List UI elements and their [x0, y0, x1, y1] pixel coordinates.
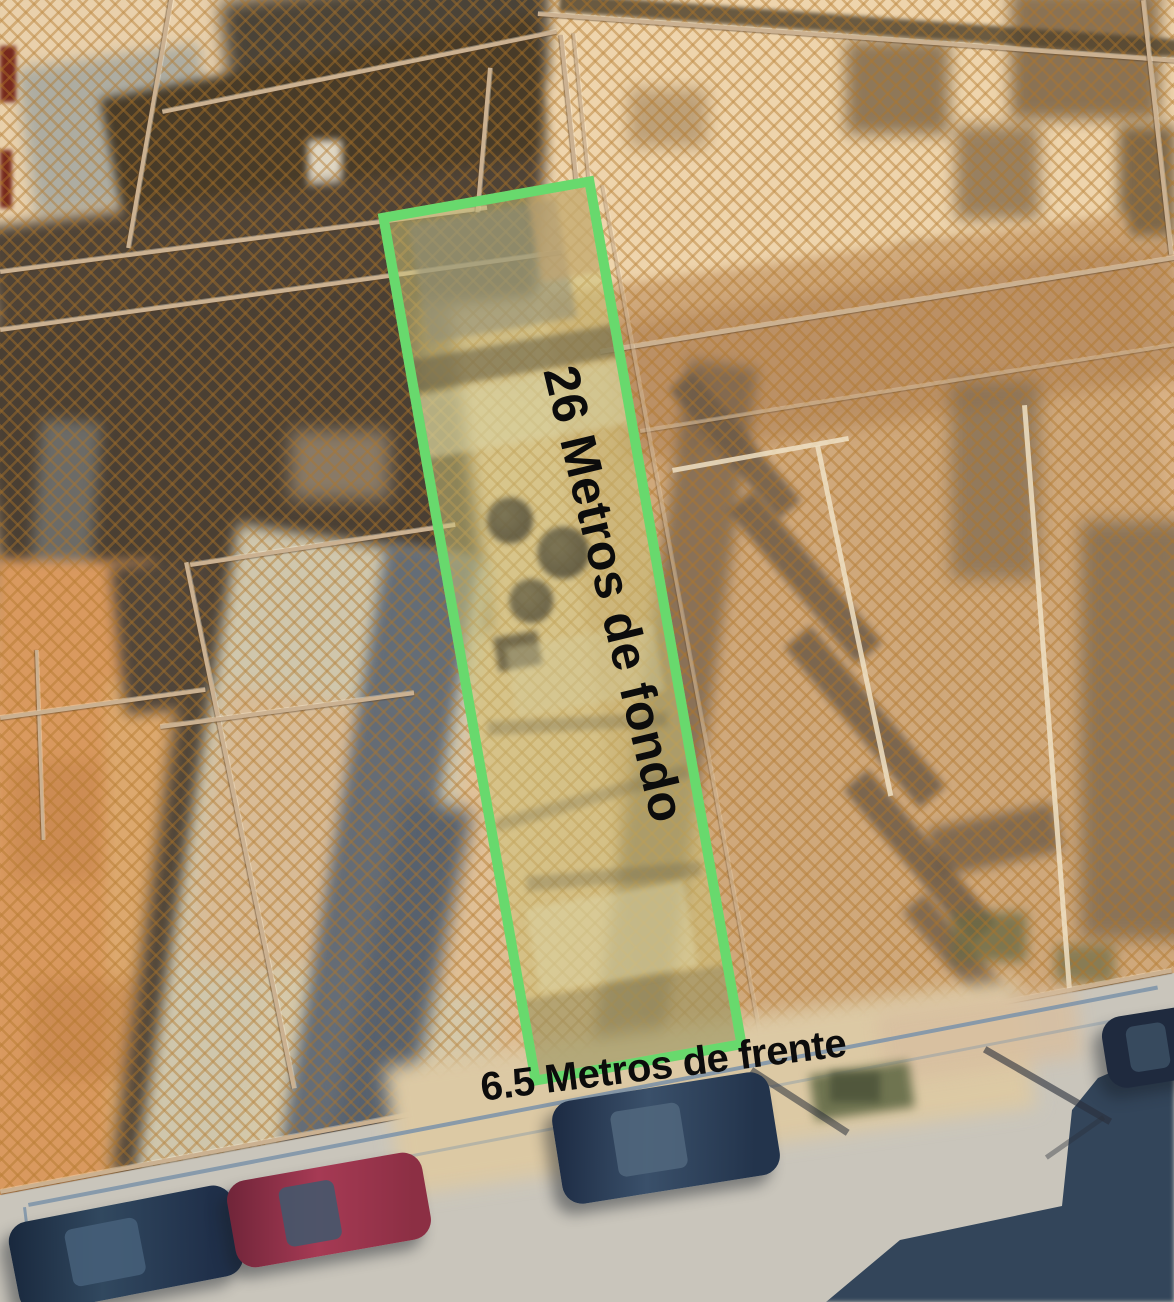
plot-tank-circle: [483, 494, 536, 547]
car-windshield: [63, 1216, 147, 1287]
parcel-boundary-line: [0, 688, 206, 720]
car-windshield: [278, 1179, 344, 1248]
car-windshield: [1125, 1021, 1172, 1073]
parcel-boundary-line: [190, 523, 456, 567]
parcel-boundary-line: [1141, 0, 1173, 255]
parcel-boundary-line: [600, 256, 1174, 354]
parcel-boundary-line: [640, 344, 1174, 433]
parcel-boundary-line: [160, 691, 414, 729]
parcel-boundary-line: [162, 30, 557, 114]
plot-tank-circle: [506, 575, 557, 626]
car-windshield: [609, 1102, 688, 1178]
parcel-boundary-line: [35, 650, 45, 840]
wall-line: [815, 445, 893, 796]
parcel-boundary-line: [538, 12, 1174, 63]
street-tree: [830, 1072, 880, 1102]
parcel-boundary-line: [475, 68, 492, 213]
parcel-boundary-line: [126, 0, 173, 248]
aerial-parcel-map: 26 Metros de fondo 6.5 Metros de frente: [0, 0, 1174, 1302]
